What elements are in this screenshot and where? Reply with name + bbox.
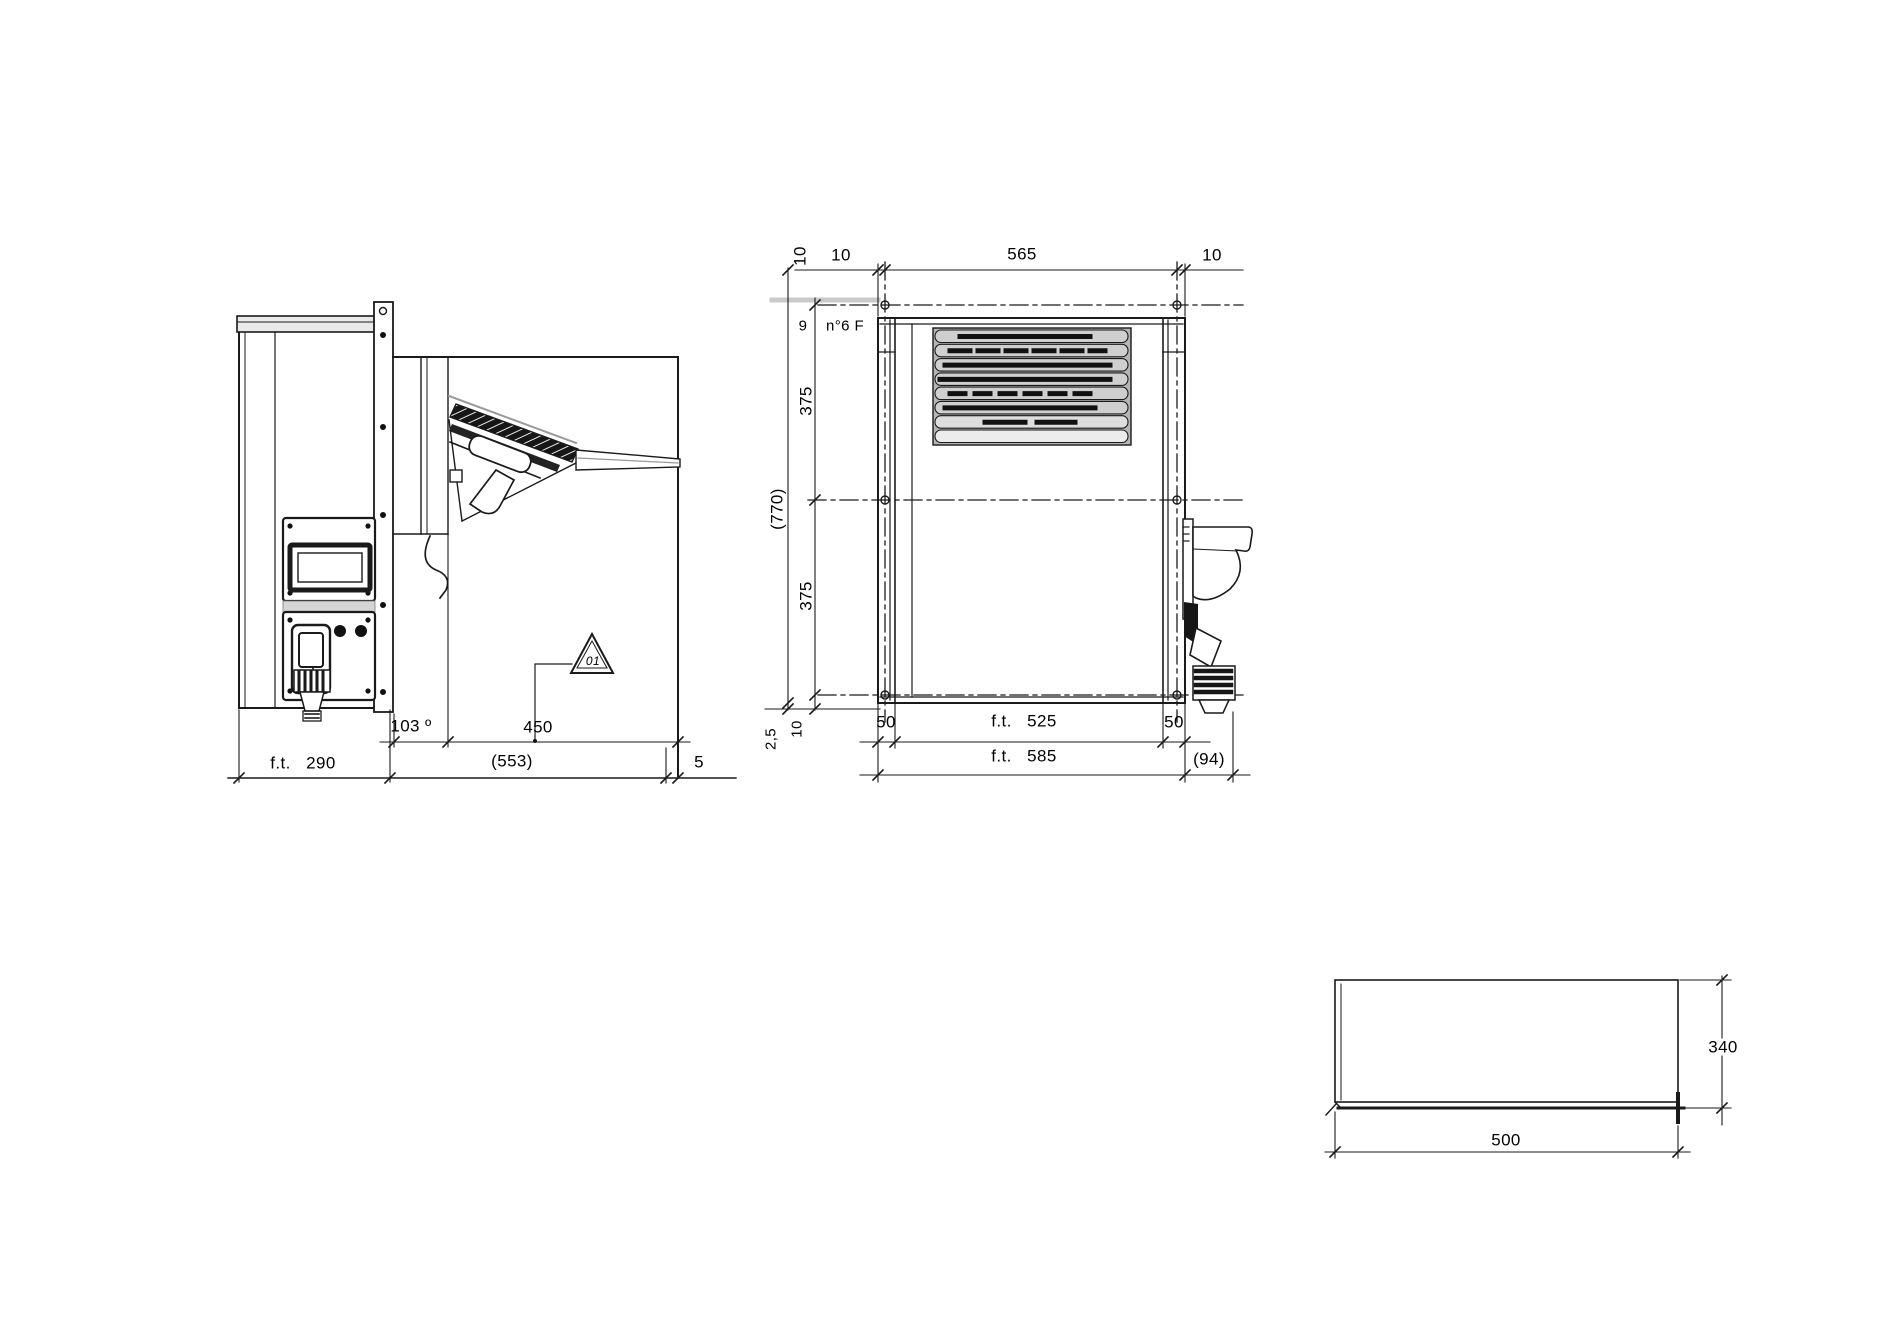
control-panel: [283, 518, 375, 612]
drain-hose: [425, 536, 447, 598]
dim-label-10-left: 10: [831, 247, 851, 264]
indicator-light: [355, 625, 367, 637]
dim-label-10-top-vert: 10: [792, 246, 809, 266]
evaporator-coil-assembly: [425, 396, 680, 598]
side-view: [228, 302, 736, 783]
wall-cutout-view: [1325, 975, 1731, 1158]
rear-view: [765, 262, 1252, 782]
technical-drawing-canvas: f.t. 290 103 º 450 (553) 5 01 10 10 565 …: [0, 0, 1890, 1336]
warning-ref-label: 01: [586, 655, 600, 667]
dim-label-94: (94): [1193, 751, 1225, 768]
dim-label-5: 5: [694, 754, 704, 771]
dim-label-375-top: 375: [798, 386, 815, 416]
socket-panel: [283, 612, 375, 721]
dim-label-ft-585: f.t. 585: [991, 748, 1056, 765]
top-cap: [237, 316, 390, 332]
dim-label-553: (553): [491, 753, 533, 770]
dim-label-ft-525: f.t. 525: [991, 713, 1056, 730]
dim-label-375-bot: 375: [798, 581, 815, 611]
dim-label-103: 103 º: [390, 718, 431, 735]
dim-label-565: 565: [1007, 246, 1037, 263]
indicator-light: [334, 625, 346, 637]
mounting-flange: [374, 302, 393, 712]
dim-label-50-left: 50: [876, 714, 896, 731]
dim-label-ft-290: f.t. 290: [270, 755, 335, 772]
dim-label-2-5: 2,5: [764, 728, 779, 750]
power-plug: [1190, 628, 1235, 713]
drain-elbow: [470, 470, 514, 514]
dim-label-340: 340: [1705, 1039, 1741, 1056]
dim-label-450: 450: [523, 719, 553, 736]
dim-label-10-bottom: 10: [790, 720, 805, 738]
dim-label-770: (770): [769, 488, 786, 530]
drain-valve: [1183, 519, 1252, 645]
hole-diameter-label: 9: [799, 319, 808, 334]
dim-label-10-right: 10: [1202, 247, 1222, 264]
hole-note-label: n°6 F: [826, 319, 864, 334]
ventilation-grille: [933, 328, 1131, 445]
drawing-linework: [0, 0, 1890, 1336]
dim-label-500: 500: [1491, 1132, 1521, 1149]
dim-label-50-right: 50: [1164, 714, 1184, 731]
